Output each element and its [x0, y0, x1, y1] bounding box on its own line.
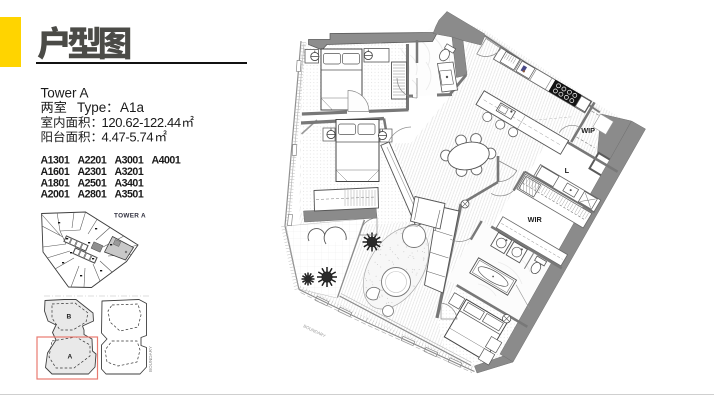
svg-text:L: L: [565, 166, 570, 175]
svg-text:WIR: WIR: [528, 215, 543, 224]
svg-text:BOUNDARY: BOUNDARY: [303, 323, 327, 338]
svg-text:BOUNDARY: BOUNDARY: [148, 346, 153, 372]
svg-text:WIP: WIP: [581, 126, 595, 135]
svg-text:B: B: [67, 314, 72, 321]
svg-text:A: A: [68, 354, 73, 361]
